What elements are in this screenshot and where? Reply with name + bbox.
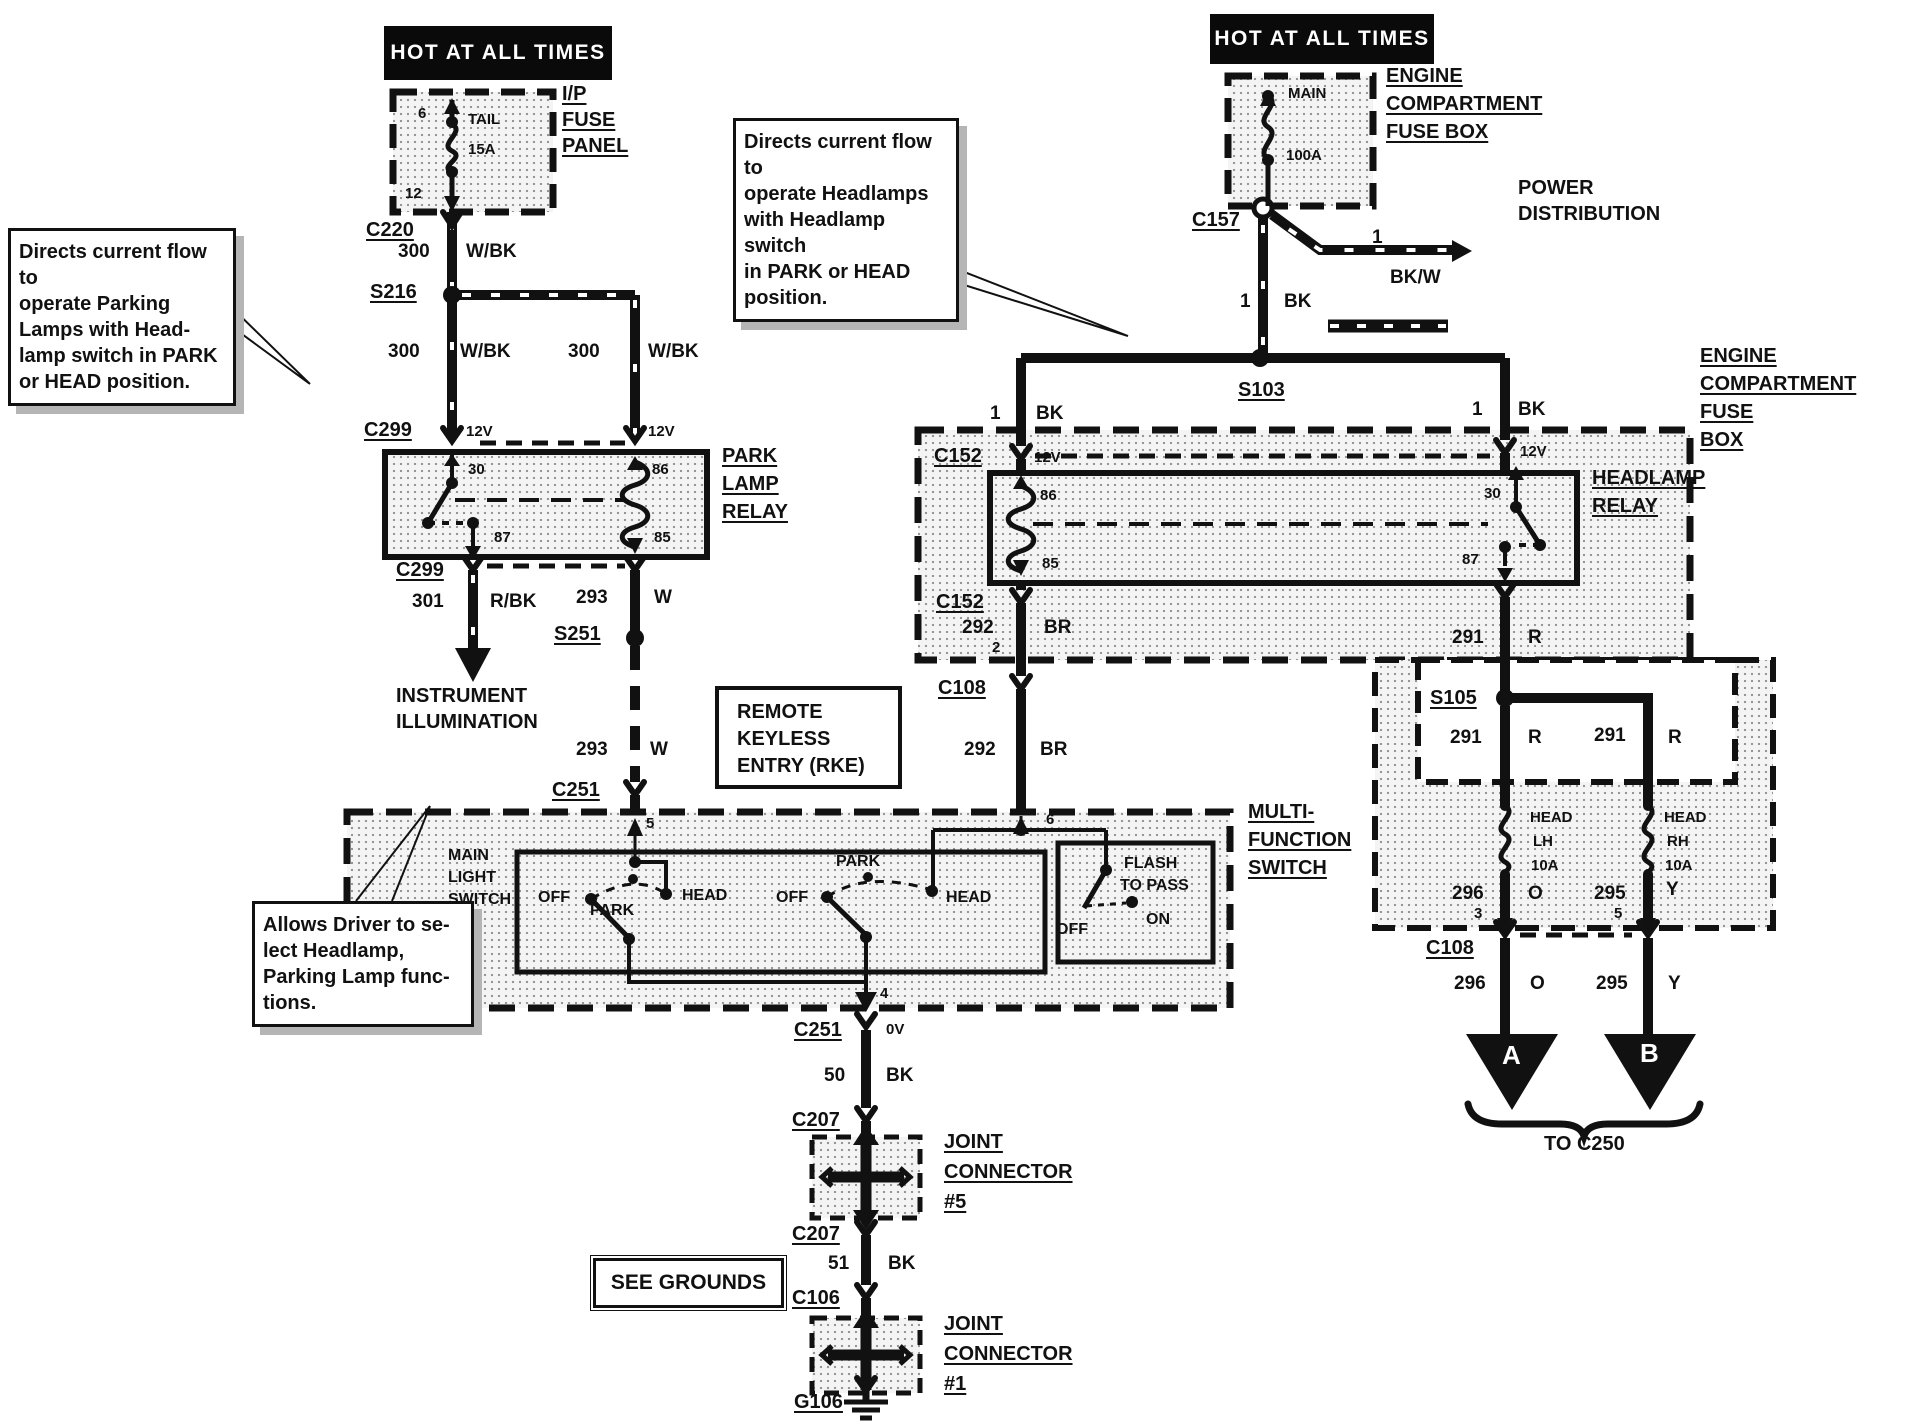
ip-fuse-panel-label: PANEL — [562, 136, 628, 156]
head-rh-fuse-label: HEAD — [1664, 810, 1707, 825]
wire-color: O — [1530, 974, 1545, 993]
wiring-diagram-page: HOT AT ALL TIMES HOT AT ALL TIMES Direct… — [0, 0, 1922, 1424]
main-light-switch-label: MAIN — [448, 848, 489, 864]
rke-label: ENTRY (RKE) — [737, 756, 865, 776]
wire-color: W/BK — [648, 342, 699, 361]
engine-fuse-box-right-label: COMPARTMENT — [1700, 374, 1856, 394]
head-lh-fuse-label: 10A — [1531, 858, 1559, 873]
head-rh-fuse-label: RH — [1667, 834, 1689, 849]
connector-c108-upper: C108 — [938, 678, 986, 698]
mfs-pin-4: 4 — [880, 986, 888, 1001]
wire-color: BK — [1284, 292, 1311, 311]
wire-color: R — [1528, 728, 1542, 747]
voltage-12v: 12V — [1034, 450, 1061, 465]
wire-num: 50 — [824, 1066, 845, 1085]
flash-on: ON — [1146, 912, 1170, 928]
callout-parking-lamps: Directs current flow to operate Parking … — [8, 228, 236, 406]
head-lh-fuse-label: HEAD — [1530, 810, 1573, 825]
power-distribution-label: DISTRIBUTION — [1518, 204, 1660, 224]
park-lamp-relay-label: LAMP — [722, 474, 779, 494]
wire-num: 296 — [1454, 974, 1486, 993]
connector-c207-bottom: C207 — [792, 1224, 840, 1244]
wire-color: BR — [1040, 740, 1067, 759]
wire-color: O — [1528, 884, 1543, 903]
connector-c299-bottom: C299 — [396, 560, 444, 580]
s103-splice-dot — [1251, 349, 1269, 367]
sw1-head: HEAD — [682, 888, 727, 904]
wire-num: 292 — [964, 740, 996, 759]
callout-line: operate Parking — [19, 291, 225, 317]
ground-symbol — [844, 1402, 888, 1418]
wire-color: R — [1668, 728, 1682, 747]
joint-connector-1-label: CONNECTOR — [944, 1344, 1073, 1364]
voltage-12v: 12V — [648, 424, 675, 439]
voltage-0v: 0V — [886, 1022, 904, 1037]
wire-num: 291 — [1452, 628, 1484, 647]
flash-to-pass-label: TO PASS — [1120, 878, 1189, 894]
wire-num: 300 — [568, 342, 600, 361]
s251-splice-dot — [626, 629, 644, 647]
splice-s216: S216 — [370, 282, 417, 302]
relay-pin-85: 85 — [1042, 556, 1059, 571]
wire-num: 296 — [1452, 884, 1484, 903]
callout-headlamps: Directs current flow to operate Headlamp… — [733, 118, 959, 322]
wire-color: BK — [1036, 404, 1063, 423]
wire-num: 291 — [1450, 728, 1482, 747]
wire-num: 293 — [576, 740, 608, 759]
see-grounds-box: SEE GROUNDS — [593, 1258, 784, 1308]
relay-pin-30: 30 — [1484, 486, 1501, 501]
park-lamp-relay-label: PARK — [722, 446, 777, 466]
joint-connector-5-label: JOINT — [944, 1132, 1003, 1152]
s105-splice-dot — [1496, 689, 1514, 707]
s216-splice-dot — [443, 286, 461, 304]
instrument-illumination-label: ILLUMINATION — [396, 712, 538, 732]
wire-color: BK — [886, 1066, 913, 1085]
wire-color: Y — [1666, 880, 1679, 899]
callout-line: Parking Lamp func- — [263, 964, 463, 990]
wire-color: BK/W — [1390, 268, 1441, 287]
connector-c299-top: C299 — [364, 420, 412, 440]
wire-color: W/BK — [466, 242, 517, 261]
splice-s251: S251 — [554, 624, 601, 644]
engine-fuse-box-right-label: ENGINE — [1700, 346, 1777, 366]
wire-num: 1 — [990, 404, 1001, 423]
rke-label: REMOTE — [737, 702, 823, 722]
fuse-pin-in: 6 — [418, 106, 426, 121]
engine-fuse-box-right-label: FUSE — [1700, 402, 1753, 422]
relay-pin-86: 86 — [1040, 488, 1057, 503]
wire-color: BK — [888, 1254, 915, 1273]
connector-c207-top: C207 — [792, 1110, 840, 1130]
ip-fuse-panel-label: I/P — [562, 84, 586, 104]
ip-fuse-panel-label: FUSE — [562, 110, 615, 130]
callout-line: operate Headlamps — [744, 181, 948, 207]
wire-color: R — [1528, 628, 1542, 647]
callout-driver-select: Allows Driver to se- lect Headlamp, Park… — [252, 901, 474, 1027]
relay-pin-87: 87 — [494, 530, 511, 545]
engine-fuse-box-label: ENGINE — [1386, 66, 1463, 86]
main-fuse-label: MAIN — [1288, 86, 1326, 101]
wire-num: 293 — [576, 588, 608, 607]
sw1-off: OFF — [538, 890, 570, 906]
main-light-switch-label: SWITCH — [448, 892, 511, 908]
wire-num: 292 — [962, 618, 994, 637]
arrow-a-letter: A — [1502, 1042, 1521, 1068]
wire-num: 291 — [1594, 726, 1626, 745]
main-fuse-rating: 100A — [1286, 148, 1322, 163]
splice-s105: S105 — [1430, 688, 1477, 708]
wire-pin: 5 — [1614, 906, 1622, 921]
wire-num: 1 — [1240, 292, 1251, 311]
mfs-label: FUNCTION — [1248, 830, 1351, 850]
callout-line: lamp switch in PARK — [19, 343, 225, 369]
callout-line: Lamps with Head- — [19, 317, 225, 343]
callout-line: with Headlamp switch — [744, 207, 948, 259]
wire-num: 51 — [828, 1254, 849, 1273]
engine-fuse-box-right-label: BOX — [1700, 430, 1743, 450]
head-lh-fuse-label: LH — [1533, 834, 1553, 849]
hot-at-all-times-banner-left: HOT AT ALL TIMES — [384, 26, 612, 80]
connector-c108-lower: C108 — [1426, 938, 1474, 958]
connector-c106: C106 — [792, 1288, 840, 1308]
flash-to-pass-label: FLASH — [1124, 856, 1177, 872]
wire-color: W/BK — [460, 342, 511, 361]
ground-g106: G106 — [794, 1392, 843, 1412]
engine-fuse-box-label: COMPARTMENT — [1386, 94, 1542, 114]
connector-c157: C157 — [1192, 210, 1240, 230]
sw1-park: PARK — [590, 903, 634, 919]
mfs-pin-6: 6 — [1046, 812, 1054, 827]
joint-connector-1-label: #1 — [944, 1374, 966, 1394]
mfs-label: MULTI- — [1248, 802, 1314, 822]
callout-line: in PARK or HEAD — [744, 259, 948, 285]
voltage-12v: 12V — [466, 424, 493, 439]
wire-num: 300 — [398, 242, 430, 261]
wire-color: Y — [1668, 974, 1681, 993]
wire-num: 301 — [412, 592, 444, 611]
relay-pin-87: 87 — [1462, 552, 1479, 567]
sw2-off: OFF — [776, 890, 808, 906]
callout-line: or HEAD position. — [19, 369, 225, 395]
fuse-pin-out: 12 — [405, 186, 422, 201]
engine-fuse-box-label: FUSE BOX — [1386, 122, 1488, 142]
wire-pin: 2 — [992, 640, 1000, 655]
headlamp-relay-label: RELAY — [1592, 496, 1658, 516]
wire-color: W — [654, 588, 672, 607]
tail-fuse-rating: 15A — [468, 142, 496, 157]
callout-line: Directs current flow to — [744, 129, 948, 181]
joint-connector-1-label: JOINT — [944, 1314, 1003, 1334]
to-c250-brace — [1468, 1104, 1700, 1136]
power-distribution-label: POWER — [1518, 178, 1594, 198]
wire-num: 295 — [1596, 974, 1628, 993]
head-rh-fuse-label: 10A — [1665, 858, 1693, 873]
callout-line: lect Headlamp, — [263, 938, 463, 964]
connector-c251-bottom: C251 — [794, 1020, 842, 1040]
rke-label: KEYLESS — [737, 729, 830, 749]
connector-c251-top: C251 — [552, 780, 600, 800]
wire-color: W — [650, 740, 668, 759]
to-c250-label: TO C250 — [1544, 1134, 1625, 1154]
wire-num: 1 — [1372, 228, 1383, 247]
joint-connector-5-label: CONNECTOR — [944, 1162, 1073, 1182]
connector-c220: C220 — [366, 220, 414, 240]
voltage-12v: 12V — [1520, 444, 1547, 459]
headlamp-relay-label: HEADLAMP — [1592, 468, 1705, 488]
main-light-switch-label: LIGHT — [448, 870, 496, 886]
hot-at-all-times-banner-right: HOT AT ALL TIMES — [1210, 14, 1434, 64]
instrument-illumination-label: INSTRUMENT — [396, 686, 527, 706]
power-distribution-arrow — [1452, 240, 1472, 262]
wire-num: 300 — [388, 342, 420, 361]
wire-color: BR — [1044, 618, 1071, 637]
callout-line: Allows Driver to se- — [263, 912, 463, 938]
splice-s103: S103 — [1238, 380, 1285, 400]
callout-line: Directs current flow to — [19, 239, 225, 291]
tail-fuse-label: TAIL — [468, 112, 500, 127]
sw2-head: HEAD — [946, 890, 991, 906]
s105-splice-box — [1418, 660, 1735, 782]
sw2-park: PARK — [836, 854, 880, 870]
wire-num: 1 — [1472, 400, 1483, 419]
mfs-pin-5: 5 — [646, 816, 654, 831]
wire-num: 295 — [1594, 884, 1626, 903]
park-lamp-relay-label: RELAY — [722, 502, 788, 522]
relay-pin-86: 86 — [652, 462, 669, 477]
joint-connector-5-label: #5 — [944, 1192, 966, 1212]
wire-pin: 3 — [1474, 906, 1482, 921]
connector-c152-left: C152 — [934, 446, 982, 466]
mfs-label: SWITCH — [1248, 858, 1327, 878]
connector-c152-lower: C152 — [936, 592, 984, 612]
relay-pin-30: 30 — [468, 462, 485, 477]
flash-off: OFF — [1056, 922, 1088, 938]
wire-color: BK — [1518, 400, 1545, 419]
callout-line: position. — [744, 285, 948, 311]
relay-pin-85: 85 — [654, 530, 671, 545]
arrow-b-letter: B — [1640, 1040, 1659, 1066]
callout-line: tions. — [263, 990, 463, 1016]
wire-color: R/BK — [490, 592, 536, 611]
instrument-illumination-arrow — [455, 648, 491, 682]
